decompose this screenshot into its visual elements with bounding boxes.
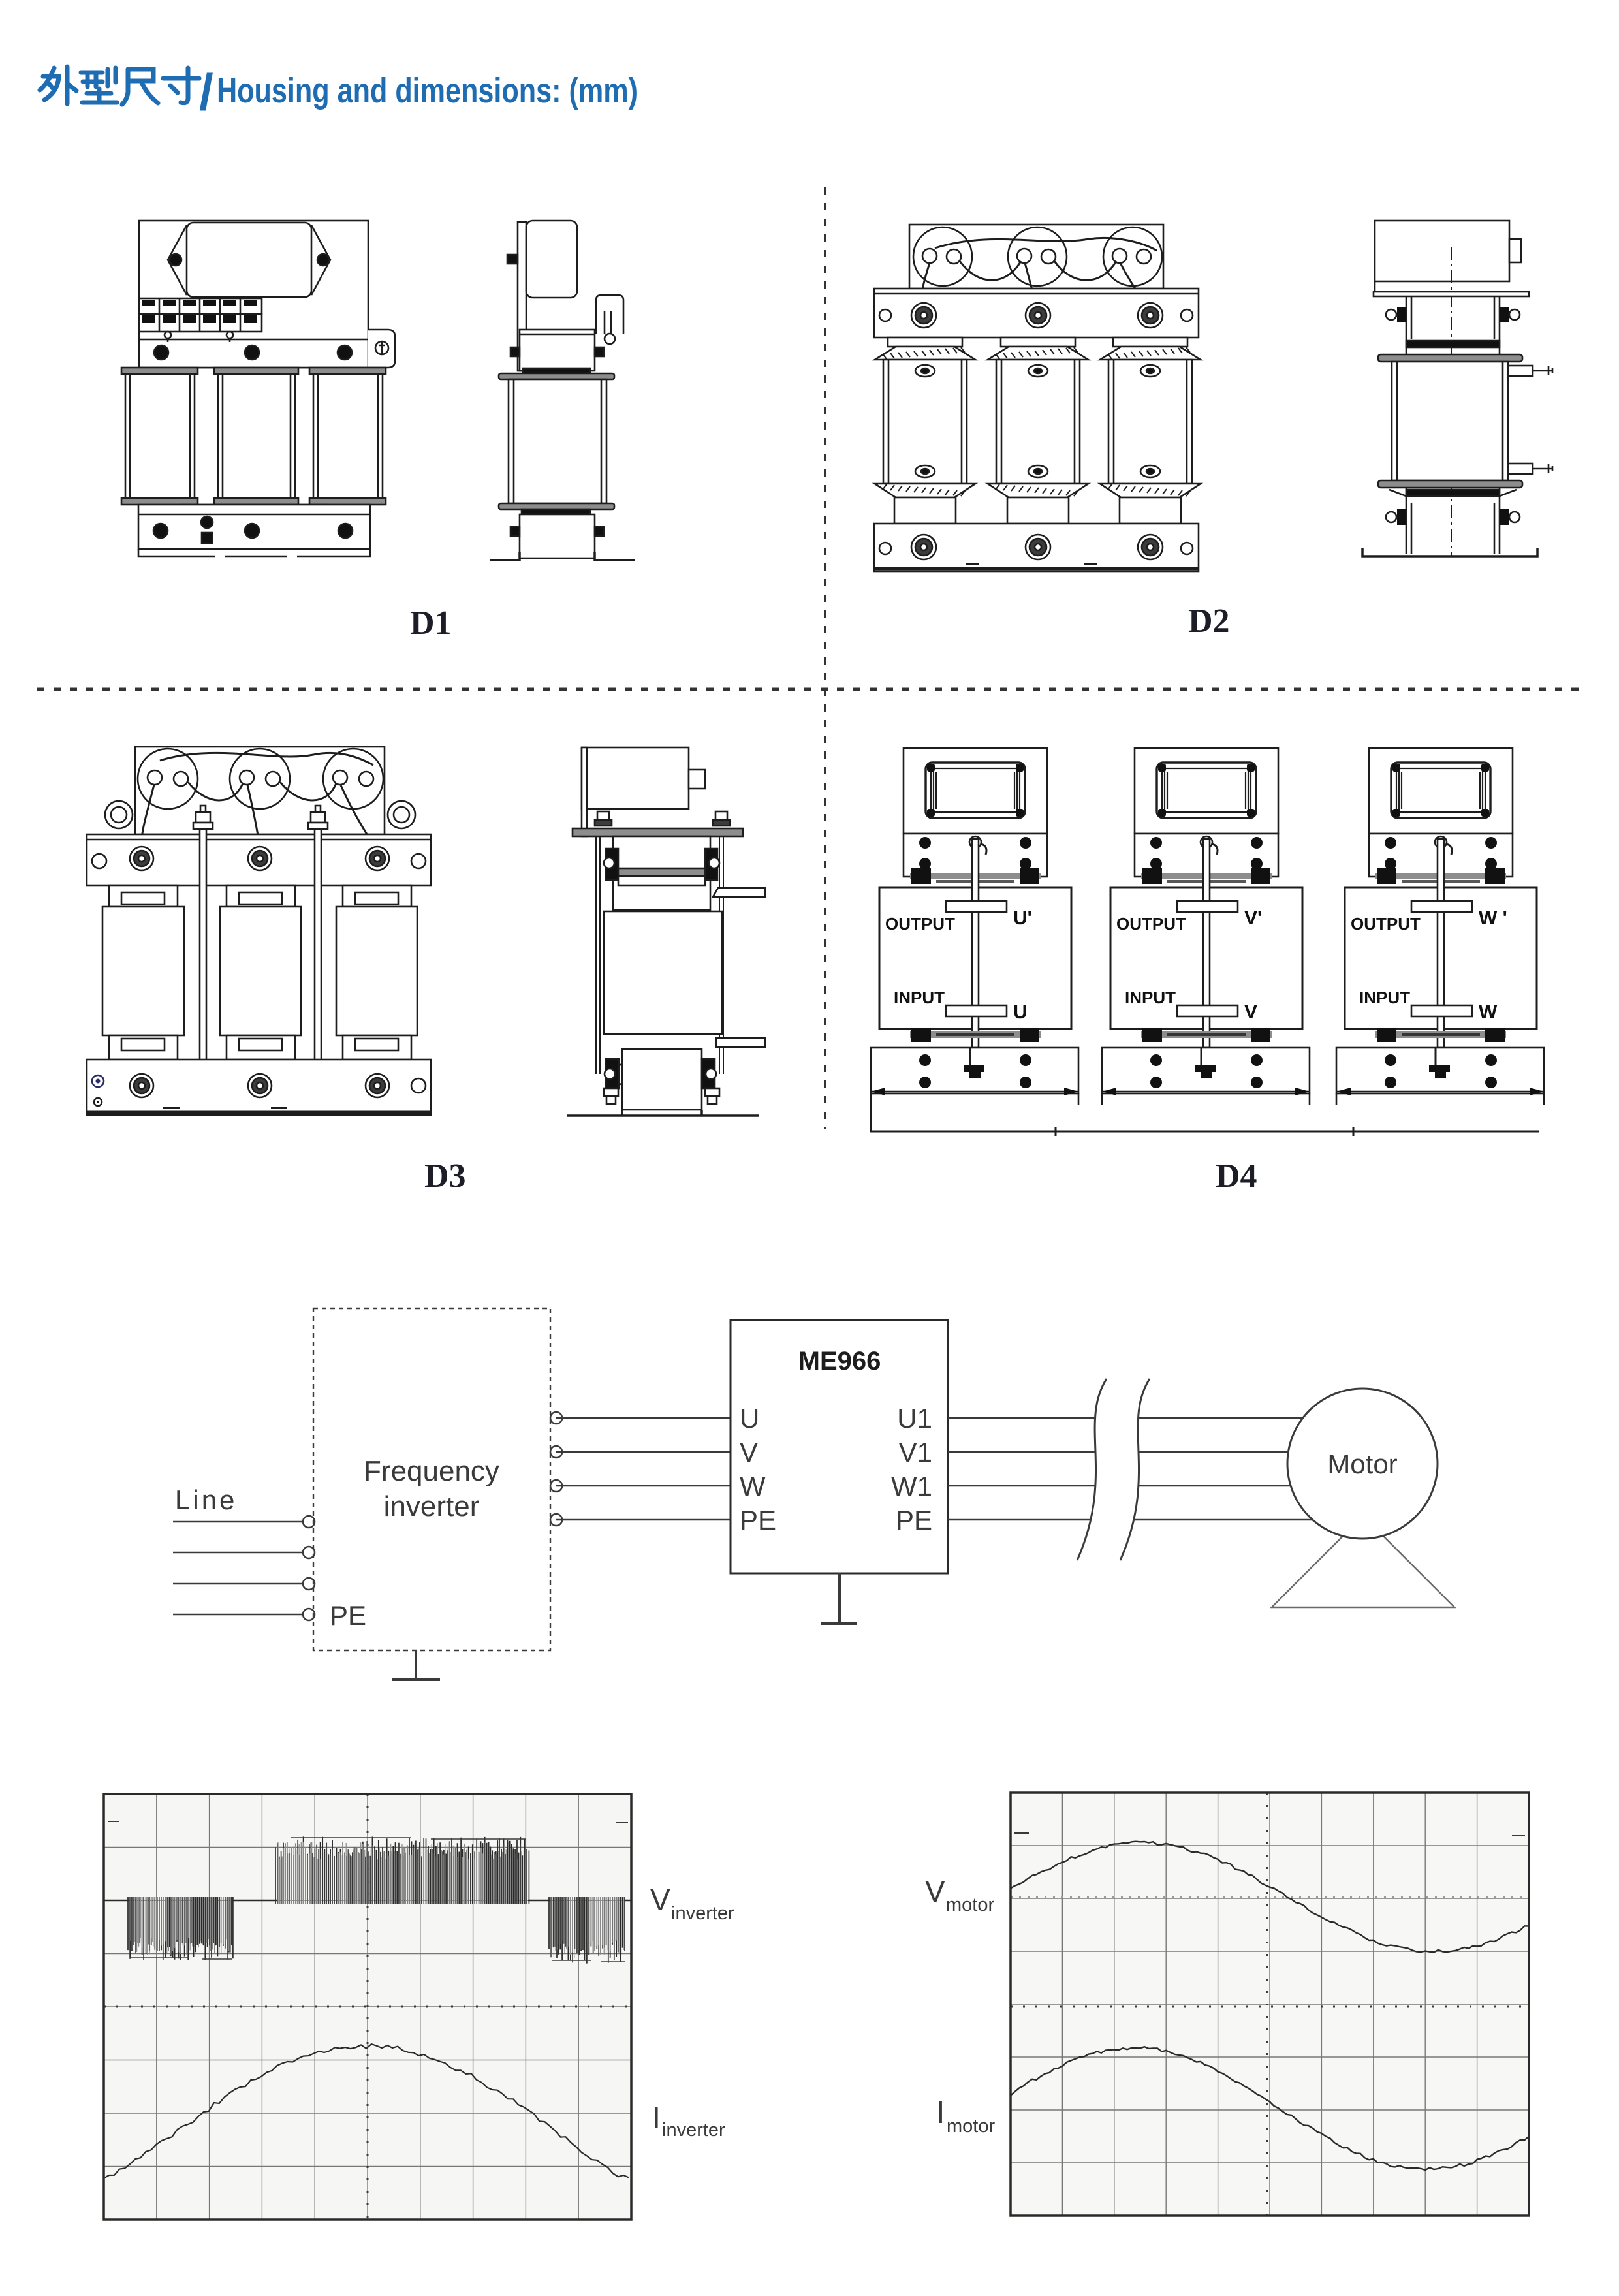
- svg-text:PE: PE: [896, 1505, 932, 1535]
- svg-text:PE: PE: [330, 1600, 366, 1631]
- svg-text:Frequency: Frequency: [364, 1455, 499, 1487]
- svg-text:D3: D3: [424, 1157, 466, 1195]
- svg-text:PE: PE: [740, 1505, 776, 1535]
- svg-text:U1: U1: [897, 1403, 932, 1434]
- svg-text:W ': W ': [1479, 907, 1507, 929]
- svg-text:U: U: [1013, 1001, 1028, 1023]
- svg-text:inverter: inverter: [671, 1903, 734, 1924]
- svg-text:I: I: [936, 2096, 945, 2130]
- svg-text:W1: W1: [891, 1471, 932, 1502]
- svg-text:V: V: [1244, 1001, 1257, 1023]
- svg-text:U: U: [740, 1403, 759, 1434]
- svg-text:ME966: ME966: [798, 1347, 881, 1376]
- svg-text:I: I: [652, 2100, 661, 2134]
- svg-text:V: V: [740, 1437, 758, 1468]
- svg-text:V: V: [925, 1874, 945, 1908]
- svg-text:V1: V1: [899, 1437, 932, 1468]
- svg-text:W: W: [740, 1471, 766, 1502]
- svg-text:motor: motor: [946, 1895, 994, 1915]
- svg-text:W: W: [1479, 1001, 1498, 1023]
- svg-text:U': U': [1013, 907, 1032, 929]
- svg-text:V': V': [1244, 907, 1262, 929]
- svg-text:V: V: [650, 1883, 670, 1917]
- svg-text:Motor: Motor: [1327, 1449, 1397, 1479]
- svg-text:inverter: inverter: [662, 2120, 725, 2141]
- svg-text:D2: D2: [1188, 603, 1230, 640]
- svg-text:D4: D4: [1216, 1157, 1257, 1195]
- svg-text:D1: D1: [410, 605, 452, 642]
- svg-text:Line: Line: [175, 1485, 237, 1515]
- svg-text:inverter: inverter: [384, 1490, 480, 1522]
- svg-text:motor: motor: [947, 2116, 995, 2137]
